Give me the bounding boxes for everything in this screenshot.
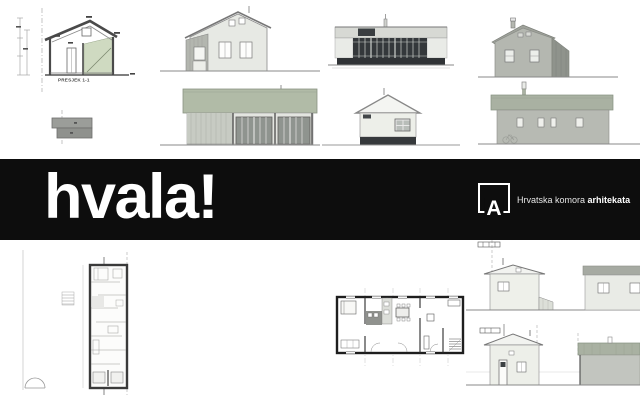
section-label: PRESJEK 1-1 [58,78,90,83]
four-elevations-sheet [466,240,640,390]
headline-text: hvala! [44,166,217,229]
logo-letter-a: A [484,198,503,219]
glass-pavilion-elevation [328,6,454,70]
bottom-drawings-row: dvorište ulica [0,240,640,400]
gray-house-elevation [478,6,640,80]
long-gray-house-elevation [478,78,640,148]
small-house-elevation [322,86,460,150]
chamber-logo-icon: A [478,183,510,213]
site-plan [0,240,160,400]
top-drawings-row: PRESJEK 1-1 [0,0,640,159]
organization-name: Hrvatska komora arhitekata [517,195,630,205]
thank-you-banner: hvala! A Hrvatska komora arhitekata [0,159,640,240]
roof-detail-drawing [46,110,100,144]
presentation-slide: PRESJEK 1-1 [0,0,640,400]
gable-house-elevation [160,3,320,75]
green-roof-house-elevation [160,84,320,150]
floor-plan [330,278,466,376]
